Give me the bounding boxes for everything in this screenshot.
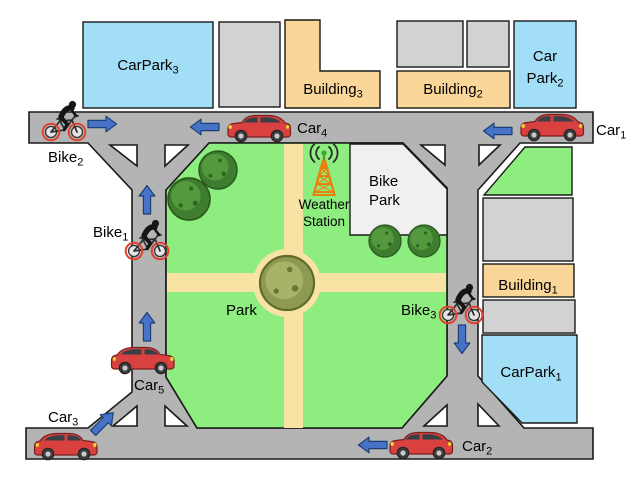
central-tree-icon <box>260 256 314 310</box>
bike-park-label-line2: Park <box>369 192 400 209</box>
carpark2-label-line1: Car <box>533 48 557 65</box>
car3-label: Car3 <box>48 409 78 429</box>
building2-label: Building2 <box>423 81 483 101</box>
gray-block-right-b <box>483 300 575 333</box>
gray-block-top-c <box>467 21 509 67</box>
park-tree-icon <box>168 178 210 220</box>
bush-icon <box>408 225 440 257</box>
gray-block-top-a <box>219 22 280 107</box>
weather-station-label-line2: Station <box>303 214 345 229</box>
gray-block-top-b <box>397 21 463 67</box>
city-map-diagram: CarPark3 Building3 Building2 Car Park2 B… <box>0 0 641 481</box>
gray-block-right-a <box>483 198 573 261</box>
carpark3-label: CarPark3 <box>117 57 178 77</box>
building1-label: Building1 <box>498 277 558 297</box>
bush-icon <box>369 225 401 257</box>
park-label: Park <box>226 302 257 319</box>
building3-label: Building3 <box>303 81 363 101</box>
bike2-label: Bike2 <box>48 149 83 169</box>
car1-label: Car1 <box>596 122 626 142</box>
weather-station-label-line1: Weather <box>299 197 350 212</box>
park-tree-icon <box>199 151 237 189</box>
carpark1-label: CarPark1 <box>500 364 561 384</box>
bike-park-label-line1: Bike <box>369 173 398 190</box>
bike1-label: Bike1 <box>93 224 128 244</box>
map-canvas: CarPark3 Building3 Building2 Car Park2 B… <box>0 0 641 481</box>
